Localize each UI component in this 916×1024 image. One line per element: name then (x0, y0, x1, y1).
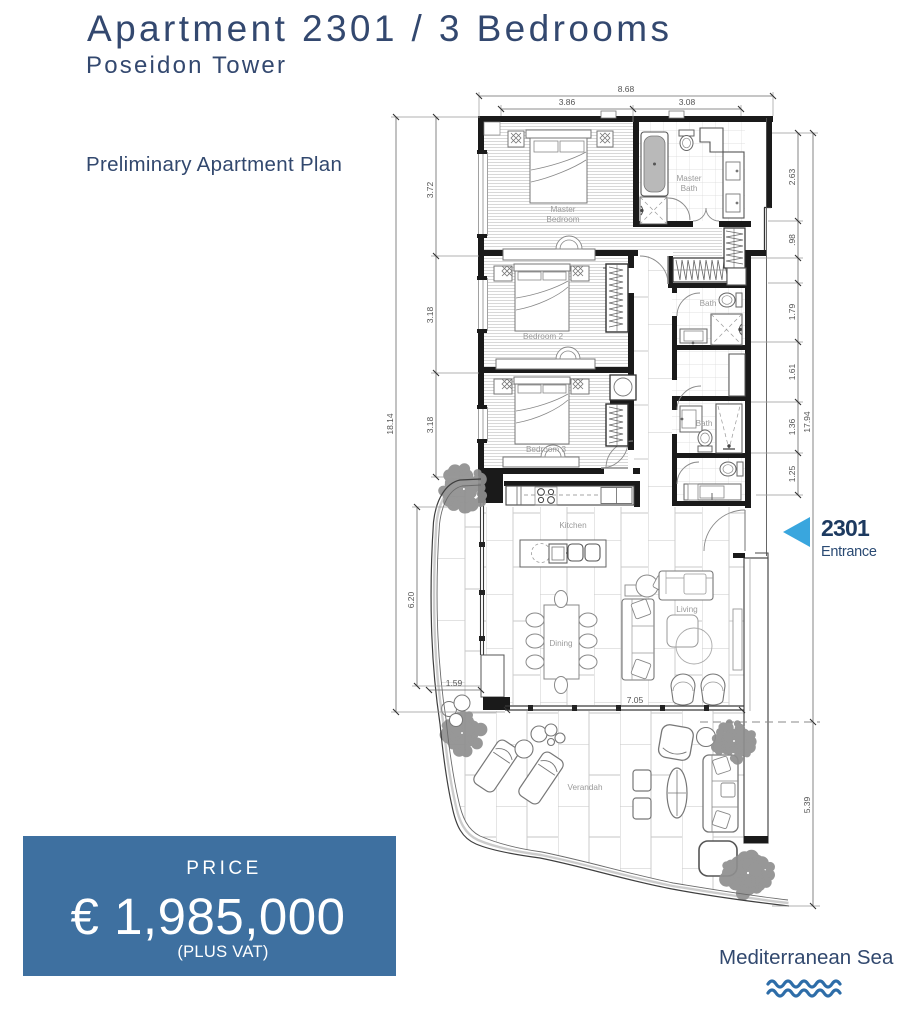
svg-text:1.61: 1.61 (787, 363, 797, 380)
svg-text:Bath: Bath (696, 419, 713, 428)
svg-text:Apartment 2301 / 3 Bedrooms: Apartment 2301 / 3 Bedrooms (87, 8, 672, 49)
svg-text:17.94: 17.94 (802, 411, 812, 433)
svg-text:Mediterranean Sea: Mediterranean Sea (719, 946, 894, 969)
svg-text:Bedroom 2: Bedroom 2 (523, 332, 563, 341)
svg-text:Preliminary Apartment Plan: Preliminary Apartment Plan (86, 153, 342, 176)
svg-text:1.36: 1.36 (787, 418, 797, 435)
svg-text:3.72: 3.72 (425, 181, 435, 198)
svg-text:Verandah: Verandah (567, 783, 603, 792)
svg-text:3.18: 3.18 (425, 306, 435, 323)
svg-text:Master: Master (676, 174, 701, 183)
svg-text:1.79: 1.79 (787, 303, 797, 320)
svg-text:2301: 2301 (821, 515, 870, 541)
svg-text:€ 1,985,000: € 1,985,000 (71, 888, 346, 945)
svg-text:.98: .98 (787, 234, 797, 246)
svg-text:1.59: 1.59 (446, 678, 463, 688)
svg-text:18.14: 18.14 (385, 413, 395, 435)
svg-text:1.25: 1.25 (787, 465, 797, 482)
svg-text:Kitchen: Kitchen (559, 521, 587, 530)
svg-text:7.05: 7.05 (627, 695, 644, 705)
svg-text:Master: Master (550, 205, 575, 214)
svg-text:3.86: 3.86 (559, 97, 576, 107)
svg-text:2.63: 2.63 (787, 168, 797, 185)
svg-text:Bedroom 3: Bedroom 3 (526, 445, 566, 454)
svg-text:Entrance: Entrance (821, 544, 877, 560)
svg-text:3.18: 3.18 (425, 416, 435, 433)
svg-text:(PLUS VAT): (PLUS VAT) (177, 943, 268, 961)
svg-text:6.20: 6.20 (406, 591, 416, 608)
svg-text:Bath: Bath (700, 299, 717, 308)
svg-text:Bath: Bath (681, 184, 698, 193)
svg-text:8.68: 8.68 (618, 84, 635, 94)
svg-text:3.08: 3.08 (679, 97, 696, 107)
svg-text:PRICE: PRICE (186, 858, 262, 879)
svg-text:Bedroom: Bedroom (546, 215, 579, 224)
svg-text:Living: Living (676, 605, 698, 614)
svg-text:5.39: 5.39 (802, 796, 812, 813)
svg-text:Poseidon Tower: Poseidon Tower (86, 52, 287, 79)
svg-text:Dining: Dining (549, 639, 573, 648)
